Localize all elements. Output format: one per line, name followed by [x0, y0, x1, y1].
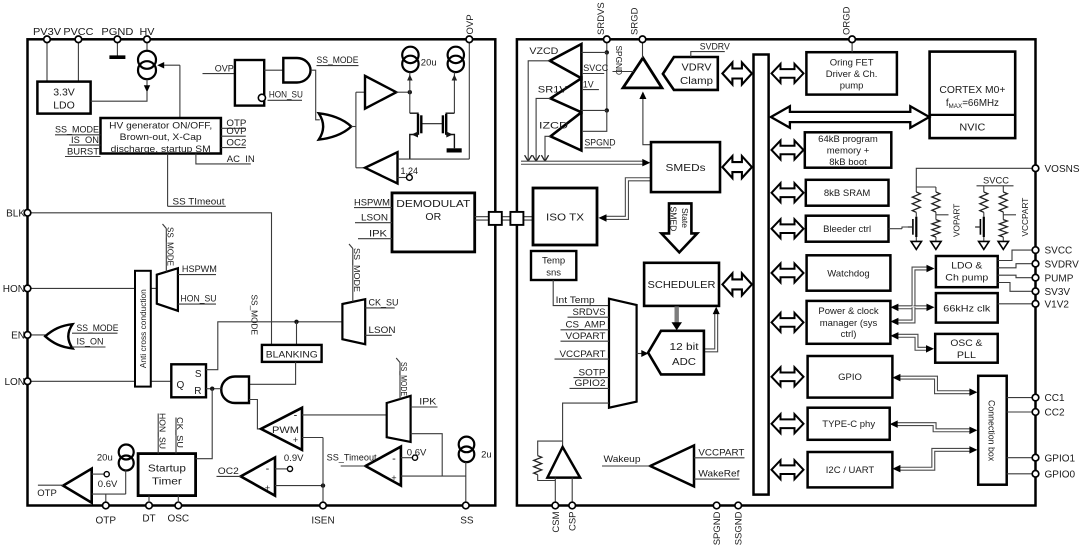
svg-text:VOSNS: VOSNS — [1045, 164, 1080, 175]
svg-text:OTP: OTP — [37, 488, 57, 499]
svg-text:SS_MODE: SS_MODE — [399, 362, 409, 396]
svg-text:HON_SU: HON_SU — [181, 294, 217, 304]
svg-text:HV generator ON/OFF,: HV generator ON/OFF, — [109, 121, 212, 132]
svg-text:OC2: OC2 — [218, 466, 239, 477]
svg-text:+: + — [293, 435, 298, 445]
svg-text:PUMP: PUMP — [1045, 273, 1074, 284]
svg-text:OVP: OVP — [465, 14, 476, 34]
svg-text:discharge, startup SM: discharge, startup SM — [111, 144, 211, 155]
svg-text:AC_IN: AC_IN — [227, 154, 255, 164]
svg-text:BLANKING: BLANKING — [266, 350, 318, 361]
svg-text:IS_ON: IS_ON — [77, 337, 104, 347]
svg-text:SS_MODE: SS_MODE — [55, 125, 99, 135]
svg-text:2u: 2u — [481, 450, 492, 461]
svg-text:Connection box: Connection box — [987, 400, 997, 462]
svg-text:pump: pump — [840, 80, 864, 91]
svg-text:LDO: LDO — [53, 100, 75, 112]
svg-text:OVP: OVP — [226, 126, 246, 136]
svg-text:SVCC: SVCC — [583, 63, 609, 73]
svg-text:DEMODULAT: DEMODULAT — [396, 198, 471, 210]
svg-text:Startup: Startup — [148, 464, 187, 475]
svg-text:GPIO2: GPIO2 — [575, 378, 606, 388]
svg-text:HON_SU: HON_SU — [157, 413, 167, 449]
svg-text:GPIO0: GPIO0 — [1045, 469, 1076, 480]
svg-text:OTP: OTP — [96, 516, 117, 527]
svg-text:LON: LON — [4, 377, 25, 388]
svg-text:ISO TX: ISO TX — [546, 212, 584, 224]
svg-text:SOTP: SOTP — [579, 367, 606, 377]
svg-text:Power & clock: Power & clock — [818, 306, 878, 317]
svg-text:OSC &: OSC & — [950, 338, 983, 349]
svg-text:CC2: CC2 — [1045, 408, 1065, 419]
svg-text:+: + — [391, 473, 396, 483]
svg-text:1V: 1V — [583, 79, 594, 89]
svg-text:Int Temp: Int Temp — [556, 295, 595, 305]
svg-text:HSPWM: HSPWM — [354, 197, 390, 207]
svg-text:SCHEDULER: SCHEDULER — [648, 280, 716, 291]
svg-text:TYPE-C phy: TYPE-C phy — [822, 419, 875, 430]
svg-text:R: R — [194, 386, 201, 397]
svg-text:sns: sns — [546, 267, 561, 278]
svg-text:66kHz clk: 66kHz clk — [943, 303, 990, 314]
svg-text:SS_MODE: SS_MODE — [166, 227, 176, 266]
svg-text:VDRV: VDRV — [682, 63, 712, 74]
svg-text:SS: SS — [460, 516, 474, 527]
svg-text:memory +: memory + — [827, 145, 870, 156]
svg-text:CSP: CSP — [568, 512, 579, 532]
svg-text:SPGND: SPGND — [614, 46, 624, 76]
svg-text:GPIO1: GPIO1 — [1045, 453, 1076, 464]
svg-text:VOPART: VOPART — [952, 204, 962, 237]
svg-text:SPGND: SPGND — [712, 511, 723, 545]
svg-text:Timer: Timer — [152, 477, 183, 488]
svg-text:+: + — [265, 483, 270, 493]
svg-text:CK_SU: CK_SU — [369, 298, 399, 308]
svg-text:EN: EN — [11, 331, 25, 342]
svg-text:SS_MODE: SS_MODE — [352, 248, 362, 292]
svg-text:SS_Timeout: SS_Timeout — [327, 452, 378, 462]
svg-text:V1V2: V1V2 — [1045, 299, 1070, 310]
svg-text:1,24: 1,24 — [401, 166, 419, 176]
svg-text:SVCC: SVCC — [983, 176, 1009, 187]
svg-text:-: - — [294, 409, 298, 421]
svg-text:CORTEX M0+: CORTEX M0+ — [939, 85, 1005, 96]
svg-text:ctrl): ctrl) — [841, 329, 857, 340]
svg-text:IZCD: IZCD — [539, 121, 568, 132]
svg-text:BURST: BURST — [67, 146, 100, 156]
svg-text:Temp: Temp — [542, 255, 565, 266]
svg-text:BLK: BLK — [6, 209, 25, 220]
svg-text:LSON: LSON — [369, 325, 396, 335]
svg-text:DT: DT — [142, 514, 155, 525]
svg-text:12 bit: 12 bit — [670, 342, 699, 353]
svg-text:ADC: ADC — [672, 357, 696, 368]
svg-text:-: - — [392, 453, 396, 465]
svg-text:SS_MODE: SS_MODE — [250, 295, 260, 336]
svg-text:SSGND: SSGND — [734, 511, 745, 545]
svg-text:VOPART: VOPART — [566, 331, 607, 341]
svg-text:SS_MODE: SS_MODE — [317, 55, 359, 65]
svg-text:OC2: OC2 — [226, 138, 246, 148]
svg-text:OR: OR — [425, 211, 441, 223]
svg-text:HSPWM: HSPWM — [182, 264, 217, 274]
svg-text:SMED: SMED — [669, 207, 679, 232]
svg-text:Watchdog: Watchdog — [827, 268, 869, 279]
svg-text:SVDRV: SVDRV — [700, 41, 730, 51]
svg-text:Bleeder ctrl: Bleeder ctrl — [823, 224, 871, 235]
svg-text:CSM: CSM — [551, 511, 562, 532]
svg-text:ISEN: ISEN — [311, 516, 334, 527]
svg-text:Ch pump: Ch pump — [945, 272, 988, 283]
svg-text:WakeRef: WakeRef — [698, 469, 739, 480]
svg-text:20u: 20u — [97, 453, 113, 464]
svg-text:SV3V: SV3V — [1045, 287, 1071, 298]
svg-text:S: S — [195, 369, 202, 380]
svg-text:manager (sys: manager (sys — [820, 318, 878, 329]
svg-text:ORGD: ORGD — [841, 6, 852, 35]
svg-text:VCCPART: VCCPART — [1020, 198, 1030, 237]
svg-text:Brown-out, X-Cap: Brown-out, X-Cap — [120, 132, 202, 143]
svg-text:0.9V: 0.9V — [284, 453, 304, 464]
svg-text:0.6V: 0.6V — [98, 479, 118, 490]
svg-text:SRGD: SRGD — [630, 7, 641, 35]
svg-text:IS_ON: IS_ON — [71, 135, 99, 145]
svg-text:SPGND: SPGND — [585, 138, 616, 148]
svg-text:Oring FET: Oring FET — [830, 57, 874, 68]
svg-text:GPIO: GPIO — [838, 372, 862, 383]
svg-text:LSON: LSON — [361, 212, 388, 222]
svg-text:OVP: OVP — [215, 64, 234, 74]
svg-text:Driver & Ch.: Driver & Ch. — [826, 69, 878, 80]
svg-text:8kB SRAM: 8kB SRAM — [824, 188, 871, 199]
svg-text:SS_MODE: SS_MODE — [77, 323, 119, 333]
svg-text:SS TImeout: SS TImeout — [173, 196, 226, 206]
svg-text:CC1: CC1 — [1045, 393, 1065, 404]
svg-text:PLL: PLL — [957, 350, 976, 361]
svg-text:LDO &: LDO & — [951, 260, 983, 271]
svg-text:SRDVS: SRDVS — [573, 307, 606, 317]
svg-text:IPK: IPK — [369, 228, 387, 238]
svg-text:CS_AMP: CS_AMP — [566, 320, 606, 330]
svg-text:NVIC: NVIC — [959, 123, 985, 134]
svg-text:OSC: OSC — [167, 514, 189, 525]
svg-text:SVCC: SVCC — [1045, 246, 1073, 257]
svg-text:3.3V: 3.3V — [53, 87, 75, 99]
svg-text:64kB program: 64kB program — [818, 134, 878, 145]
svg-text:SR1V: SR1V — [538, 85, 568, 96]
svg-text:SVDRV: SVDRV — [1045, 259, 1080, 270]
svg-text:8kB boot: 8kB boot — [829, 157, 867, 168]
svg-text:State: State — [680, 208, 690, 228]
svg-text:-: - — [266, 463, 270, 475]
svg-text:SMEDs: SMEDs — [666, 162, 706, 174]
svg-text:VCCPART: VCCPART — [560, 349, 607, 359]
svg-text:IPK: IPK — [419, 397, 436, 407]
svg-text:Wakeup: Wakeup — [604, 454, 641, 465]
svg-text:CK_SU: CK_SU — [175, 417, 185, 448]
svg-text:20u: 20u — [421, 57, 437, 68]
svg-text:Anti cross conduction: Anti cross conduction — [138, 289, 148, 368]
svg-text:HON: HON — [3, 284, 25, 295]
svg-text:VZCD: VZCD — [529, 46, 558, 57]
svg-text:HON_SU: HON_SU — [269, 90, 303, 100]
svg-text:I2C / UART: I2C / UART — [826, 465, 875, 476]
svg-text:Q: Q — [177, 380, 185, 391]
svg-text:SRDVS: SRDVS — [596, 2, 607, 35]
svg-text:VCCPART: VCCPART — [698, 447, 744, 458]
svg-text:Clamp: Clamp — [680, 76, 713, 87]
